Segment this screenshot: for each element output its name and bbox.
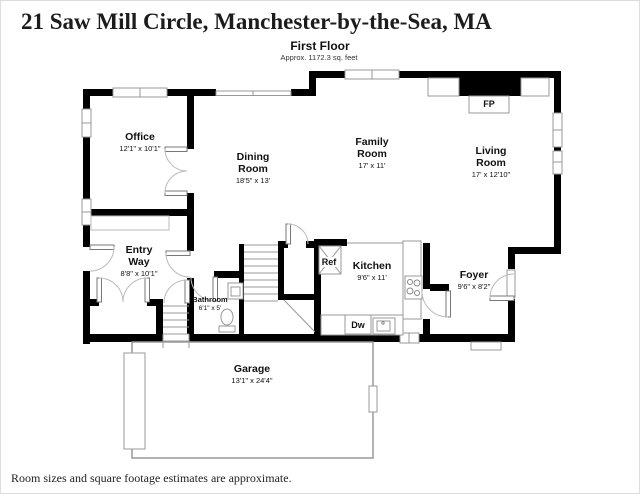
garage-door	[124, 353, 145, 449]
wall-segment	[508, 247, 561, 254]
room-dims: 8'8" x 10'1"	[119, 269, 159, 278]
garage-window	[369, 386, 377, 412]
room-dims: 17' x 11'	[348, 161, 396, 170]
room-label-garage: Garage 13'1" x 24'4"	[212, 363, 292, 385]
wall-segment	[278, 241, 284, 299]
door-leaf	[166, 251, 190, 256]
wall-segment	[156, 306, 163, 334]
refrigerator-label: Ref	[321, 257, 338, 267]
room-name: Family Room	[348, 136, 396, 160]
entry-closet	[91, 216, 169, 230]
room-name: Entry Way	[119, 244, 159, 268]
room-label-dining-room: Dining Room 18'5" x 13'	[230, 151, 276, 185]
room-name: Garage	[212, 363, 292, 375]
door-leaf	[90, 245, 114, 250]
doors	[90, 147, 514, 317]
stove-icon	[405, 276, 422, 299]
room-dims: 17' x 12'10"	[468, 170, 514, 179]
door-swing-arc	[90, 247, 114, 271]
door-leaf	[97, 278, 102, 302]
door-leaf	[490, 296, 514, 301]
door-swing-arc	[422, 291, 448, 317]
room-dims: 18'5" x 13'	[230, 176, 276, 185]
room-label-foyer: Foyer 9'6" x 8'2"	[439, 269, 509, 291]
room-dims: 9'6" x 8'2"	[439, 282, 509, 291]
door-swing-arc	[123, 278, 147, 302]
fireplace-nook	[428, 78, 459, 96]
wall-segment	[306, 241, 315, 248]
wall-segment	[83, 209, 194, 216]
toilet-tank	[219, 326, 235, 332]
door-leaf	[145, 278, 150, 302]
door-leaf	[165, 191, 187, 196]
room-label-kitchen: Kitchen 9'6" x 11'	[337, 260, 407, 282]
door-opening	[82, 247, 91, 271]
room-dims: 13'1" x 24'4"	[212, 376, 292, 385]
room-name: Kitchen	[337, 260, 407, 272]
room-name: Living Room	[468, 145, 514, 169]
fireplace-label: FP	[483, 99, 495, 109]
door-leaf	[446, 291, 451, 317]
room-name: Office	[105, 131, 175, 143]
dishwasher-label: Dw	[350, 320, 366, 330]
fireplace-nook	[521, 78, 549, 96]
room-label-family-room: Family Room 17' x 11'	[348, 136, 396, 170]
garage-walls	[132, 342, 373, 458]
room-dims: 6'1" x 5'	[175, 305, 245, 313]
wall-segment	[83, 334, 515, 342]
room-dims: 12'1" x 10'1"	[105, 144, 175, 153]
garage-outline	[124, 342, 377, 458]
wall-segment	[423, 319, 430, 342]
bath-sink-basin	[231, 287, 240, 296]
understair-line	[284, 300, 315, 332]
door-leaf	[286, 224, 291, 244]
disclaimer: Room sizes and square footage estimates …	[11, 471, 292, 486]
wall-segment	[423, 243, 430, 289]
door-swing-arc	[165, 171, 187, 193]
door-swing-arc	[166, 253, 190, 277]
room-label-bathroom: Bathroom 6'1" x 5'	[175, 296, 245, 312]
room-label-entry-way: Entry Way 8'8" x 10'1"	[119, 244, 159, 278]
room-name: Bathroom	[175, 296, 245, 305]
room-label-living-room: Living Room 17' x 12'10"	[468, 145, 514, 179]
room-name: Foyer	[439, 269, 509, 281]
chimney-block	[459, 78, 521, 96]
front-stoop	[471, 342, 501, 350]
door-swing-arc	[99, 278, 123, 302]
room-dims: 9'6" x 11'	[337, 273, 407, 282]
room-label-office: Office 12'1" x 10'1"	[105, 131, 175, 153]
kitchen-fixtures	[319, 241, 422, 335]
door-opening	[187, 149, 194, 193]
floor-plan-page: 21 Saw Mill Circle, Manchester-by-the-Se…	[0, 0, 640, 494]
sliding-door	[216, 91, 291, 96]
room-name: Dining Room	[230, 151, 276, 175]
floor-plan-drawing	[1, 1, 640, 494]
